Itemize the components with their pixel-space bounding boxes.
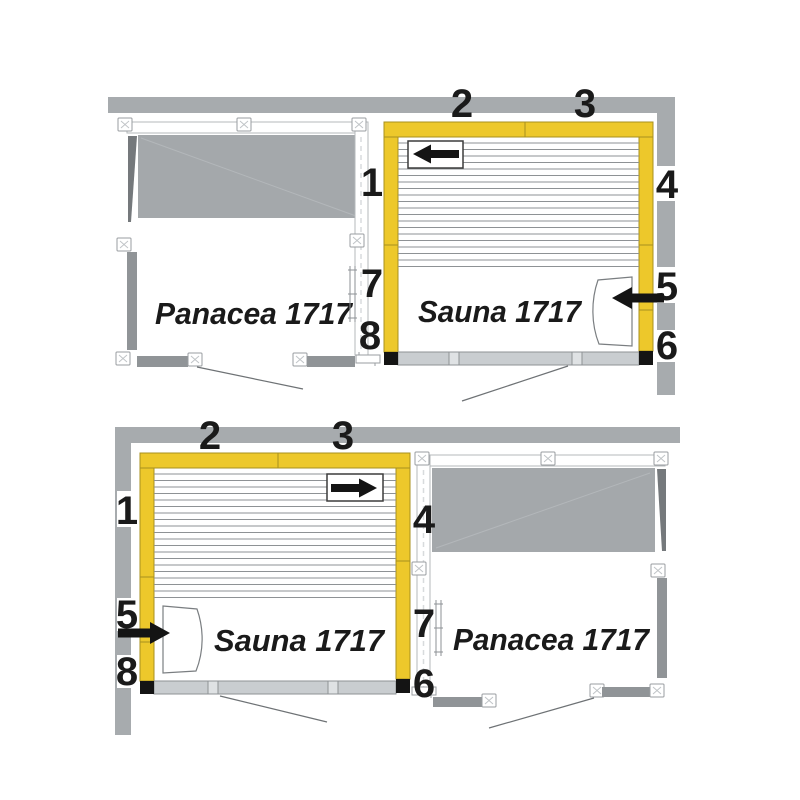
sauna-wall-top: [140, 453, 410, 468]
wall-wedge: [657, 469, 666, 551]
top-diagram: 2 3 Panacea 1717: [108, 82, 679, 401]
connector-icon: [541, 452, 555, 465]
sauna-wall-left: [140, 468, 154, 681]
corner-block: [384, 352, 398, 365]
connector-icon: [412, 562, 426, 575]
part-label-2: 2: [451, 82, 473, 126]
front-wall-divider: [572, 352, 582, 365]
sauna-wall-right: [639, 137, 653, 351]
part-label-2: 2: [199, 414, 221, 458]
part-label-3: 3: [332, 414, 354, 458]
connector-icon: [188, 353, 202, 366]
connector-icon: [415, 452, 429, 465]
connector-icon: [237, 118, 251, 131]
leader-line: [220, 696, 327, 722]
panacea-room: Panacea 1717: [116, 118, 368, 389]
connector-icon: [350, 234, 364, 247]
connector-icon: [651, 564, 665, 577]
connector-icon: [590, 684, 604, 697]
door-swing: [593, 277, 632, 346]
wall-segment-bottom: [307, 356, 355, 367]
wall-wedge: [128, 136, 137, 222]
room-label-sauna: Sauna 1717: [418, 294, 583, 329]
connector-icon: [352, 118, 366, 131]
room-label-sauna: Sauna 1717: [214, 623, 386, 658]
front-wall: [398, 352, 639, 365]
part-label-8: 8: [116, 650, 138, 694]
room-label-panacea: Panacea 1717: [155, 296, 354, 331]
front-wall: [154, 681, 396, 694]
part-label-1: 1: [116, 489, 138, 533]
part-label-7: 7: [361, 262, 383, 306]
front-wall-divider: [449, 352, 459, 365]
front-wall-divider: [328, 681, 338, 694]
panacea-room: Panacea 1717: [412, 452, 668, 728]
part-label-8: 8: [359, 314, 381, 358]
sauna-room: Sauna 1717: [348, 122, 653, 401]
wall-segment-bottom: [602, 687, 651, 697]
wall-segment-bottom: [137, 356, 188, 367]
room-label-panacea: Panacea 1717: [453, 622, 651, 657]
part-label-4: 4: [413, 498, 436, 542]
sauna-room: Sauna 1717: [140, 453, 410, 722]
part-label-1: 1: [361, 161, 383, 205]
wall-segment-left: [127, 252, 137, 350]
wall-segment-bottom: [433, 697, 482, 707]
hinge-icon: [434, 600, 443, 656]
corner-block: [396, 679, 410, 693]
sauna-wall-right: [396, 468, 410, 679]
floor-plan-svg: 2 3 Panacea 1717: [0, 0, 800, 800]
connector-icon: [293, 353, 307, 366]
connector-icon: [650, 684, 664, 697]
part-label-6: 6: [656, 324, 678, 368]
front-wall-divider: [208, 681, 218, 694]
wall-segment-right: [657, 578, 667, 678]
diagram-canvas: 2 3 Panacea 1717: [0, 0, 800, 800]
connector-icon: [117, 238, 131, 251]
connector-icon: [118, 118, 132, 131]
leader-line: [197, 367, 303, 389]
connector-icon: [116, 352, 130, 365]
connector-icon: [654, 452, 668, 465]
part-label-7: 7: [413, 602, 435, 646]
connector-icon: [482, 694, 496, 707]
sauna-wall-top: [384, 122, 653, 137]
leader-line: [462, 366, 568, 401]
part-label-4: 4: [656, 163, 679, 207]
bottom-diagram: 2 3 Sauna 1717: [115, 414, 680, 735]
part-label-3: 3: [574, 82, 596, 126]
corner-block: [639, 351, 653, 365]
leader-line: [489, 698, 594, 728]
part-label-6: 6: [413, 662, 435, 706]
corner-block: [140, 681, 154, 694]
door-swing: [163, 606, 202, 673]
